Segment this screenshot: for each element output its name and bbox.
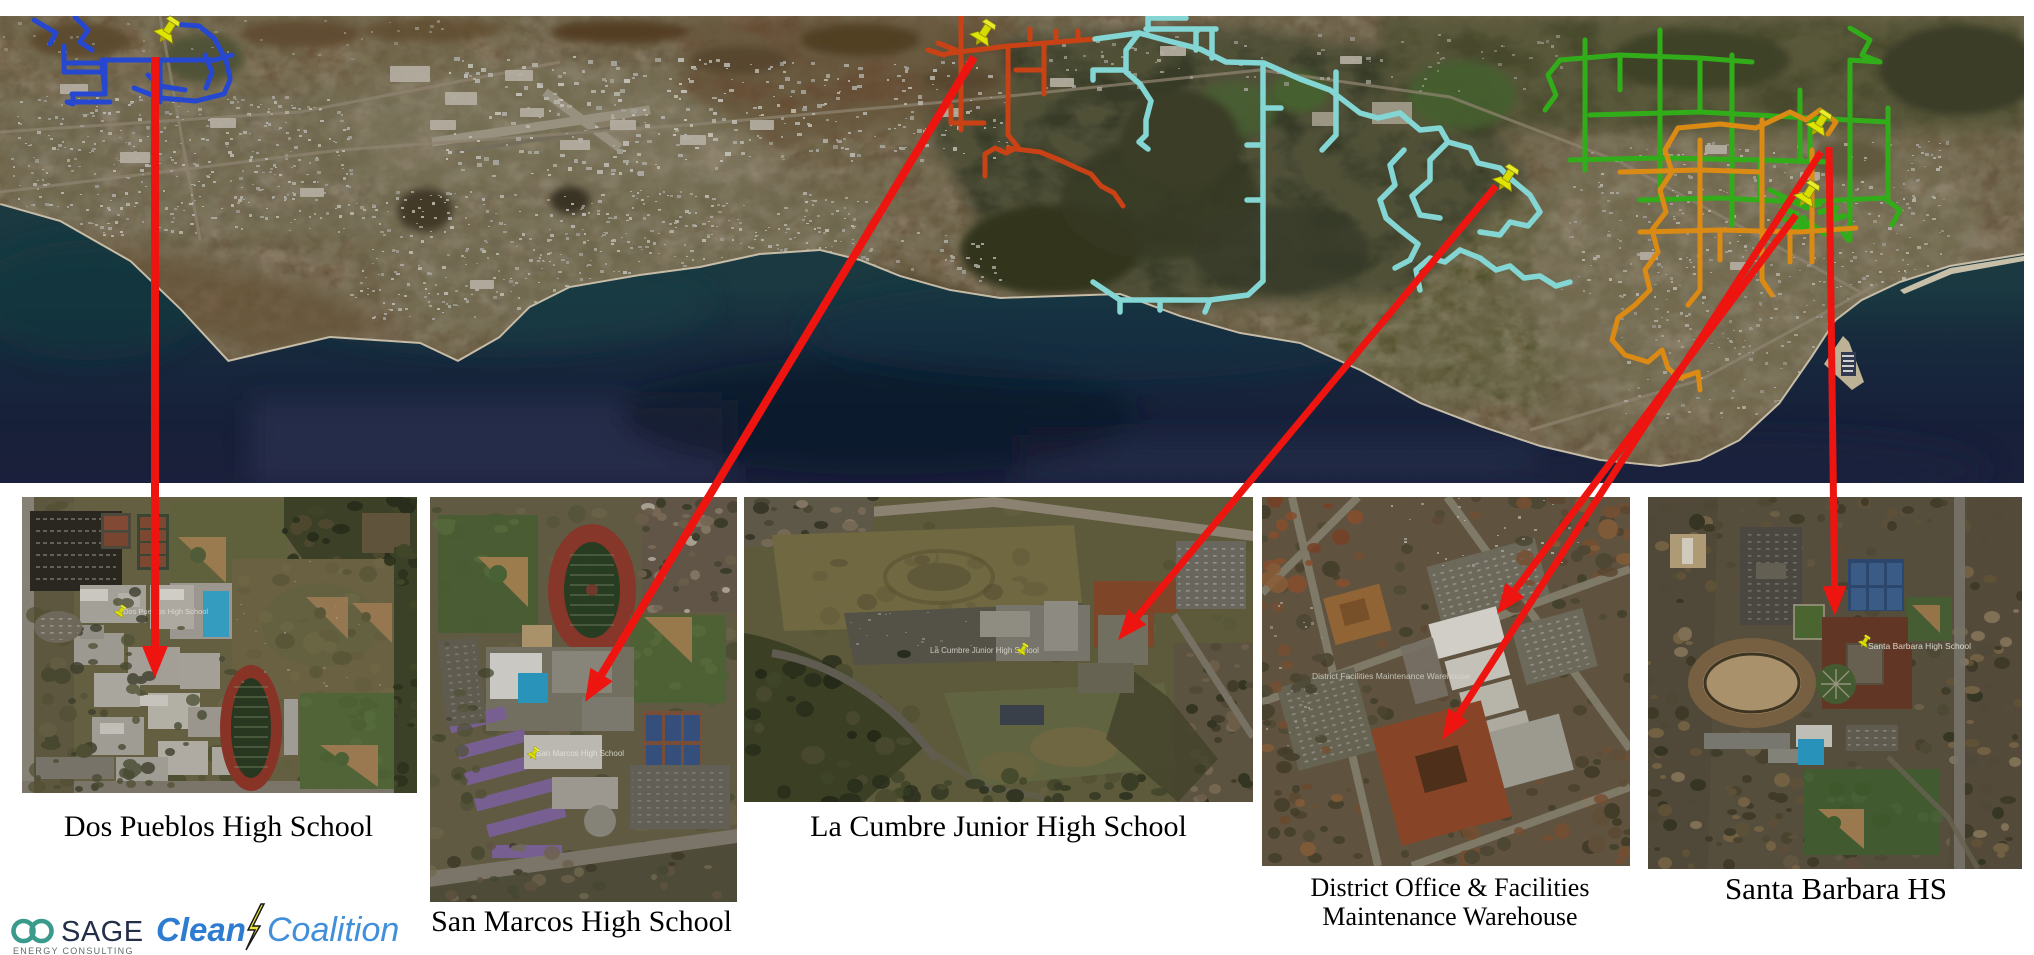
svg-text:District Facilities Maintenanc: District Facilities Maintenance Warehous…: [1312, 671, 1470, 681]
svg-text:ENERGY CONSULTING: ENERGY CONSULTING: [13, 946, 134, 955]
svg-text:Coalition: Coalition: [267, 911, 399, 949]
svg-text:Dos Pueblos High School: Dos Pueblos High School: [123, 607, 208, 616]
svg-text:Clean: Clean: [156, 911, 246, 948]
svg-text:San Marcos High School: San Marcos High School: [536, 749, 624, 758]
svg-text:Santa Barbara High School: Santa Barbara High School: [1868, 641, 1971, 651]
svg-text:SAGE: SAGE: [61, 916, 144, 948]
